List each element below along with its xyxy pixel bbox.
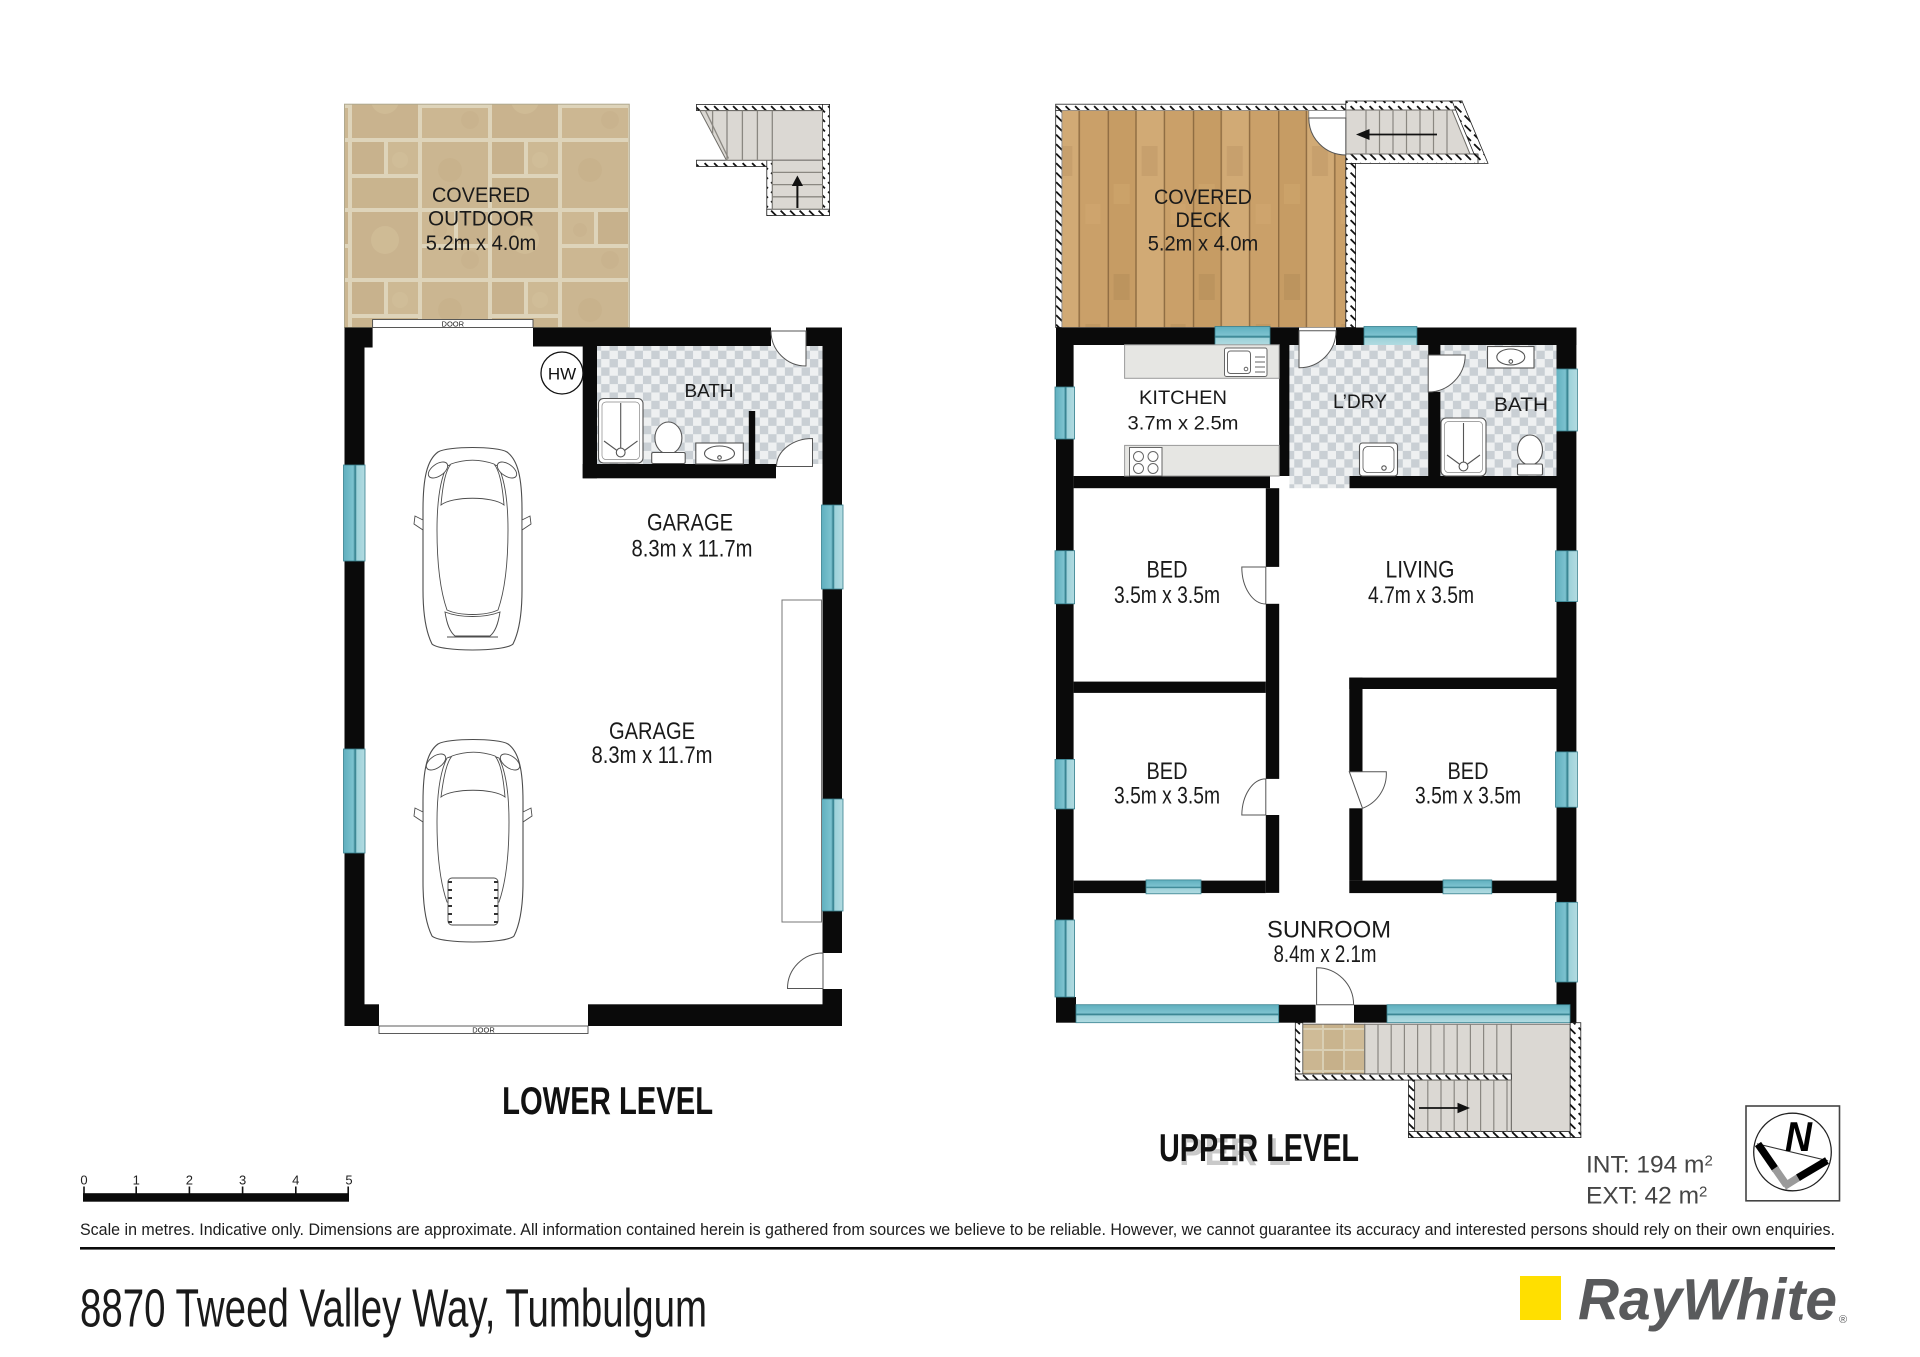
svg-text:Scale in metres. Indicative on: Scale in metres. Indicative only. Dimens… — [80, 1221, 1835, 1239]
svg-text:BATH: BATH — [1494, 395, 1548, 416]
svg-text:KITCHEN: KITCHEN — [1139, 388, 1227, 409]
svg-text:DOOR: DOOR — [442, 319, 465, 328]
svg-text:INT: 194 m2: INT: 194 m2 — [1586, 1151, 1713, 1178]
svg-text:BED: BED — [1147, 557, 1188, 584]
svg-text:L’DRY: L’DRY — [1333, 392, 1387, 413]
svg-text:LOWER LEVEL: LOWER LEVEL — [502, 1080, 713, 1123]
svg-text:COVERED: COVERED — [432, 184, 530, 207]
svg-text:GARAGE: GARAGE — [609, 718, 695, 745]
svg-text:5.2m x 4.0m: 5.2m x 4.0m — [1148, 233, 1259, 256]
svg-text:HW: HW — [548, 365, 576, 384]
svg-text:1: 1 — [133, 1173, 140, 1188]
svg-text:8.3m x 11.7m: 8.3m x 11.7m — [592, 742, 713, 769]
svg-text:3.5m x 3.5m: 3.5m x 3.5m — [1114, 582, 1220, 609]
svg-text:8.3m x 11.7m: 8.3m x 11.7m — [632, 536, 753, 563]
svg-text:BATH: BATH — [685, 381, 734, 401]
svg-text:EXT: 42 m2: EXT: 42 m2 — [1586, 1182, 1707, 1209]
svg-text:3.5m x 3.5m: 3.5m x 3.5m — [1114, 783, 1220, 810]
svg-text:RayWhite: RayWhite — [1578, 1268, 1837, 1333]
svg-text:DECK: DECK — [1176, 209, 1231, 232]
svg-text:BED: BED — [1147, 758, 1188, 785]
svg-text:OUTDOOR: OUTDOOR — [428, 208, 534, 231]
svg-text:4.7m x 3.5m: 4.7m x 3.5m — [1368, 582, 1474, 609]
svg-text:DOOR: DOOR — [472, 1025, 495, 1034]
svg-text:2: 2 — [186, 1173, 193, 1188]
svg-text:5: 5 — [345, 1173, 352, 1188]
svg-text:5.2m x 4.0m: 5.2m x 4.0m — [426, 232, 537, 255]
svg-text:0: 0 — [80, 1173, 87, 1188]
svg-text:SUNROOM: SUNROOM — [1267, 917, 1391, 944]
svg-text:COVERED: COVERED — [1154, 186, 1252, 209]
svg-text:3: 3 — [239, 1173, 246, 1188]
svg-text:8.4m x 2.1m: 8.4m x 2.1m — [1274, 941, 1377, 968]
svg-text:GARAGE: GARAGE — [647, 510, 733, 537]
svg-text:3.5m x 3.5m: 3.5m x 3.5m — [1415, 783, 1521, 810]
svg-text:3.7m x 2.5m: 3.7m x 2.5m — [1128, 414, 1239, 435]
svg-text:LIVING: LIVING — [1386, 557, 1455, 584]
svg-text:8870 Tweed Valley Way, Tumbulg: 8870 Tweed Valley Way, Tumbulgum — [80, 1279, 707, 1339]
svg-text:BED: BED — [1448, 758, 1489, 785]
svg-text:UPPER LEVEL: UPPER LEVEL — [1159, 1127, 1359, 1170]
svg-text:®: ® — [1839, 1314, 1847, 1326]
svg-text:N: N — [1785, 1113, 1813, 1160]
svg-text:4: 4 — [292, 1173, 299, 1188]
